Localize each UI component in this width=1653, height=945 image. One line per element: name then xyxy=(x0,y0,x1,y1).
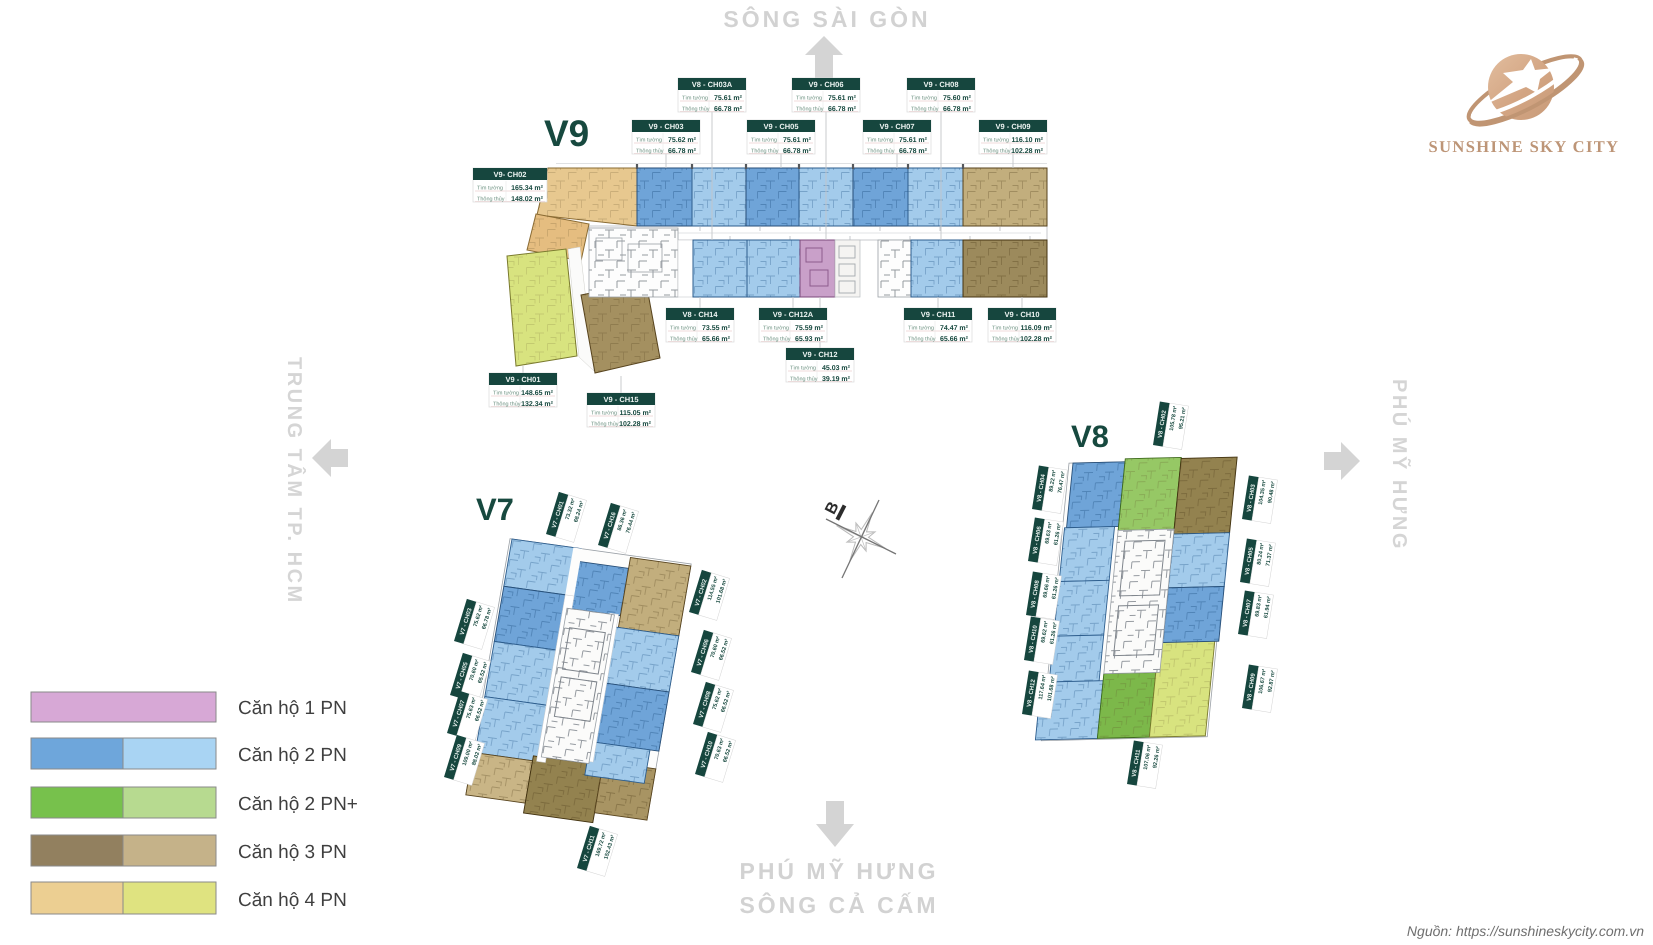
svg-text:Thông thủy: Thông thủy xyxy=(983,148,1011,155)
svg-text:115.05 m²: 115.05 m² xyxy=(619,410,651,417)
svg-text:75.61 m²: 75.61 m² xyxy=(783,137,812,144)
svg-text:74.47 m²: 74.47 m² xyxy=(940,325,969,332)
svg-text:Tìm tường: Tìm tường xyxy=(682,95,708,102)
svg-text:165.34 m²: 165.34 m² xyxy=(511,185,544,192)
svg-text:V8: V8 xyxy=(1071,419,1109,454)
svg-text:39.19 m²: 39.19 m² xyxy=(822,376,851,383)
svg-text:Thông thủy: Thông thủy xyxy=(591,421,619,428)
svg-text:66.78 m²: 66.78 m² xyxy=(943,106,972,113)
svg-text:Tìm tường: Tìm tường xyxy=(670,325,696,332)
svg-text:148.65 m²: 148.65 m² xyxy=(521,390,554,397)
svg-text:Căn hộ 4 PN: Căn hộ 4 PN xyxy=(238,890,347,911)
svg-text:Căn hộ 2 PN+: Căn hộ 2 PN+ xyxy=(238,794,358,815)
svg-text:Tìm tường: Tìm tường xyxy=(477,185,503,192)
svg-text:V9 - CH10: V9 - CH10 xyxy=(1004,310,1039,319)
svg-text:75.61 m²: 75.61 m² xyxy=(714,95,743,102)
svg-text:SUNSHINE SKY CITY: SUNSHINE SKY CITY xyxy=(1429,137,1620,156)
svg-text:Căn hộ 1 PN: Căn hộ 1 PN xyxy=(238,698,347,719)
svg-text:Tìm tường: Tìm tường xyxy=(763,325,789,332)
svg-text:Thông thủy: Thông thủy xyxy=(908,336,936,343)
svg-text:V9 - CH12A: V9 - CH12A xyxy=(773,310,814,319)
svg-text:Thông thủy: Thông thủy xyxy=(911,106,939,113)
svg-text:116.09 m²: 116.09 m² xyxy=(1020,325,1052,332)
svg-text:45.03 m²: 45.03 m² xyxy=(822,365,851,372)
svg-text:Tìm tường: Tìm tường xyxy=(493,390,519,397)
svg-text:73.55 m²: 73.55 m² xyxy=(702,325,731,332)
svg-text:V9 - CH11: V9 - CH11 xyxy=(921,310,956,319)
svg-text:SÔNG CẢ CẤM: SÔNG CẢ CẤM xyxy=(739,892,938,918)
svg-text:Thông thủy: Thông thủy xyxy=(477,196,505,203)
svg-text:Thông thủy: Thông thủy xyxy=(682,106,710,113)
svg-text:V9- CH02: V9- CH02 xyxy=(494,170,527,179)
svg-text:TRUNG TÂM TP. HCM: TRUNG TÂM TP. HCM xyxy=(283,357,306,605)
svg-text:Thông thủy: Thông thủy xyxy=(493,401,521,408)
svg-text:66.78 m²: 66.78 m² xyxy=(668,148,697,155)
svg-text:66.78 m²: 66.78 m² xyxy=(714,106,743,113)
svg-text:Nguồn: https://sunshineskycity: Nguồn: https://sunshineskycity.com.vn xyxy=(1407,923,1644,939)
svg-text:V9 - CH09: V9 - CH09 xyxy=(995,122,1030,131)
svg-text:75.62 m²: 75.62 m² xyxy=(668,137,697,144)
svg-text:Thông thủy: Thông thủy xyxy=(670,336,698,343)
svg-text:Căn hộ 3 PN: Căn hộ 3 PN xyxy=(238,842,347,863)
svg-text:75.59 m²: 75.59 m² xyxy=(795,325,824,332)
svg-text:V9 - CH01: V9 - CH01 xyxy=(505,375,540,384)
svg-text:Căn hộ 2 PN: Căn hộ 2 PN xyxy=(238,745,347,766)
svg-text:V9 - CH15: V9 - CH15 xyxy=(603,395,638,404)
svg-text:66.78 m²: 66.78 m² xyxy=(828,106,857,113)
svg-text:V9 - CH12: V9 - CH12 xyxy=(802,350,837,359)
svg-text:132.34 m²: 132.34 m² xyxy=(521,401,554,408)
svg-text:Tìm tường: Tìm tường xyxy=(591,410,617,417)
svg-text:Tìm tường: Tìm tường xyxy=(867,137,893,144)
svg-text:V9 - CH06: V9 - CH06 xyxy=(808,80,843,89)
svg-text:Tìm tường: Tìm tường xyxy=(911,95,937,102)
svg-text:Thông thủy: Thông thủy xyxy=(992,336,1020,343)
svg-text:65.93 m²: 65.93 m² xyxy=(795,336,824,343)
svg-text:Tìm tường: Tìm tường xyxy=(908,325,934,332)
svg-text:Tìm tường: Tìm tường xyxy=(636,137,662,144)
svg-text:75.61 m²: 75.61 m² xyxy=(828,95,857,102)
svg-text:V8 - CH14: V8 - CH14 xyxy=(682,310,718,319)
svg-text:V8 - CH03A: V8 - CH03A xyxy=(692,80,733,89)
svg-text:V9: V9 xyxy=(544,113,589,154)
svg-text:65.66 m²: 65.66 m² xyxy=(702,336,731,343)
svg-text:102.28 m²: 102.28 m² xyxy=(619,421,652,428)
svg-text:Tìm tường: Tìm tường xyxy=(992,325,1018,332)
svg-text:Thông thủy: Thông thủy xyxy=(796,106,824,113)
svg-text:Thông thủy: Thông thủy xyxy=(867,148,895,155)
svg-text:102.28 m²: 102.28 m² xyxy=(1020,336,1053,343)
svg-text:V9 - CH05: V9 - CH05 xyxy=(763,122,798,131)
svg-text:V7: V7 xyxy=(476,492,514,527)
svg-text:Tìm tường: Tìm tường xyxy=(796,95,822,102)
svg-text:116.10 m²: 116.10 m² xyxy=(1011,137,1043,144)
svg-text:75.61 m²: 75.61 m² xyxy=(899,137,928,144)
svg-text:Thông thủy: Thông thủy xyxy=(790,376,818,383)
svg-text:75.60 m²: 75.60 m² xyxy=(943,95,972,102)
svg-text:Tìm tường: Tìm tường xyxy=(790,365,816,372)
svg-text:PHÚ MỸ HƯNG: PHÚ MỸ HƯNG xyxy=(1388,379,1411,551)
svg-text:Thông thủy: Thông thủy xyxy=(636,148,664,155)
svg-text:V9 - CH03: V9 - CH03 xyxy=(648,122,683,131)
svg-text:Tìm tường: Tìm tường xyxy=(983,137,1009,144)
svg-text:SÔNG SÀI GÒN: SÔNG SÀI GÒN xyxy=(723,6,930,32)
svg-text:V9 - CH08: V9 - CH08 xyxy=(923,80,958,89)
svg-text:Thông thủy: Thông thủy xyxy=(763,336,791,343)
svg-text:66.78 m²: 66.78 m² xyxy=(899,148,928,155)
svg-text:148.02 m²: 148.02 m² xyxy=(511,196,544,203)
svg-text:Tìm tường: Tìm tường xyxy=(751,137,777,144)
svg-text:66.78 m²: 66.78 m² xyxy=(783,148,812,155)
svg-text:PHÚ MỸ HƯNG: PHÚ MỸ HƯNG xyxy=(739,858,938,884)
svg-text:Thông thủy: Thông thủy xyxy=(751,148,779,155)
svg-text:102.28 m²: 102.28 m² xyxy=(1011,148,1044,155)
svg-text:V9 - CH07: V9 - CH07 xyxy=(879,122,914,131)
svg-text:65.66 m²: 65.66 m² xyxy=(940,336,969,343)
